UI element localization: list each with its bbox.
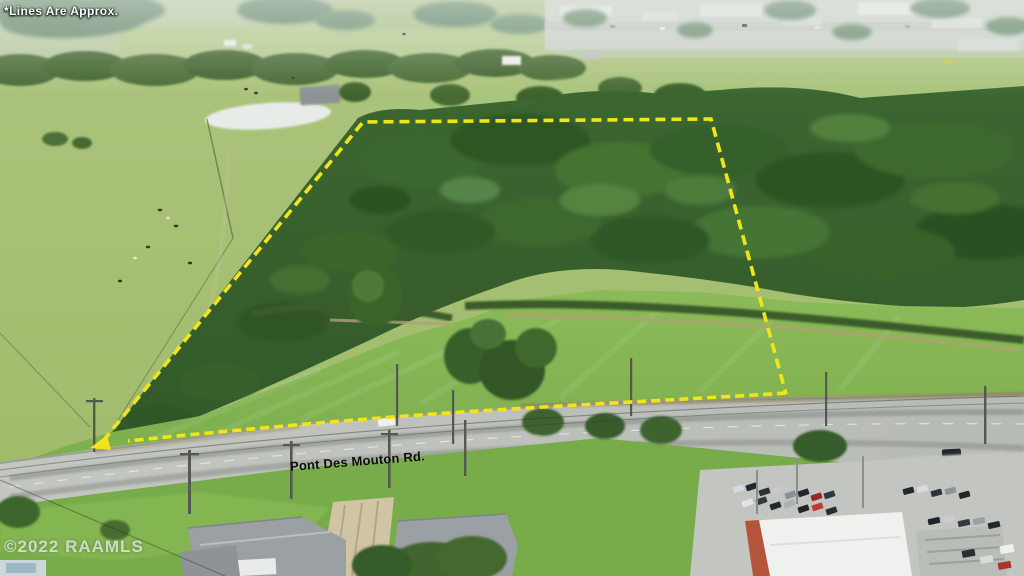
aerial-photo-scene — [0, 0, 1024, 576]
aerial-photo: *Lines Are Approx. Pont Des Mouton Rd. ©… — [0, 0, 1024, 576]
haze — [0, 0, 1024, 95]
dealership — [690, 452, 1024, 576]
